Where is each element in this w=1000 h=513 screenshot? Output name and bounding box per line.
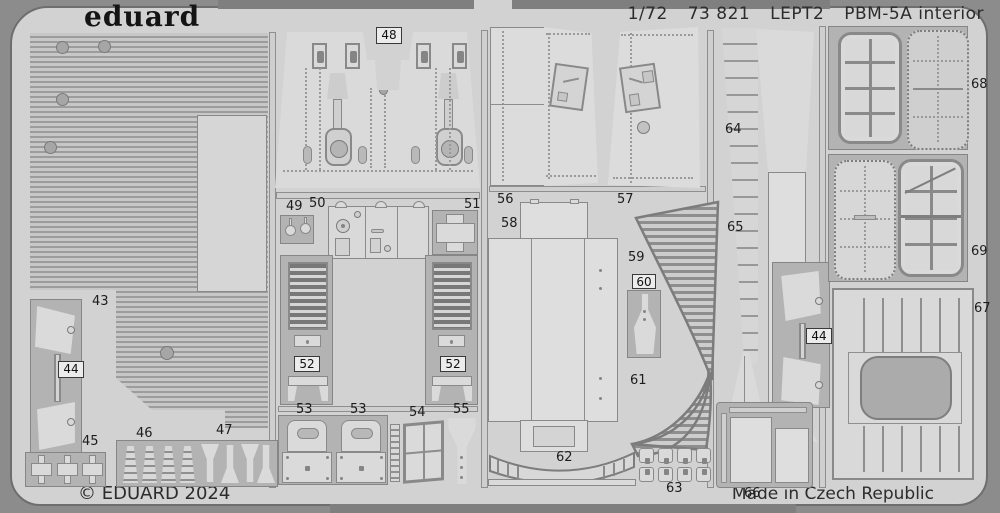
part-53-seat-base [336, 452, 386, 483]
part-51-carrier [432, 210, 478, 255]
part-45-cross [57, 463, 78, 476]
part-48-rivet-line [283, 170, 473, 172]
part-52-left-carrier [280, 255, 333, 405]
part-47-strap [241, 444, 259, 482]
part-67-cutout [860, 356, 952, 420]
part-50-knob [384, 245, 391, 252]
part-47-strap [221, 445, 239, 483]
part-label-54: 54 [409, 405, 426, 420]
part-67-ribbed-panel [832, 288, 974, 480]
part-48-rivet-line [370, 88, 372, 168]
header-info: 1/72 73 821 LEPT2 PBM-5A interior [614, 4, 984, 24]
part-52-bench-top [288, 376, 328, 386]
part-66-carrier [716, 402, 813, 488]
part-69-etched-panel [834, 160, 896, 280]
part-44-link [799, 323, 806, 359]
part-63-clamp [658, 467, 673, 482]
part-57-panel [605, 27, 700, 188]
part-52-bench-leg [319, 386, 328, 401]
part-48-rivet-line [449, 68, 451, 170]
part-56-wrapper [490, 27, 600, 186]
part-47-strap [201, 444, 219, 482]
part-63-clamp [677, 467, 692, 482]
part-48-mount-stem [333, 99, 342, 129]
part-63-clamp [658, 448, 673, 463]
part-46-ladder [180, 446, 195, 483]
part-50-bump [375, 201, 387, 208]
part-44-frame-b [35, 402, 77, 450]
part-52-plate [294, 335, 321, 347]
part-48-hole [379, 86, 388, 95]
catalog-number: 73 821 [688, 4, 750, 24]
part-47-strap [257, 445, 275, 483]
part-52-bench-leg [432, 386, 441, 401]
part-49-key-stem [289, 218, 292, 226]
part-label-64: 64 [725, 122, 742, 137]
frame-edge-bottom [330, 504, 796, 513]
part-54-wrapper [388, 418, 446, 485]
part-label-45: 45 [82, 434, 99, 449]
part-50-bump [335, 201, 347, 208]
part-50-knob [354, 211, 361, 218]
part-43-hole [160, 346, 174, 360]
part-label-69: 69 [971, 244, 988, 259]
part-44-pulley [67, 326, 75, 334]
part-63-clamp [696, 467, 711, 482]
kit-title: PBM-5A interior [844, 4, 984, 24]
part-66-plate-b [775, 428, 809, 483]
part-63-clamp [696, 448, 711, 463]
part-53-seat-back [341, 420, 381, 452]
part-label-62: 62 [556, 450, 573, 465]
part-label-63: 63 [666, 481, 683, 496]
part-62-base-strip [488, 479, 636, 486]
part-label-68: 68 [971, 77, 988, 92]
part-48-keyhole [325, 128, 352, 166]
part-50-gauge-dot [341, 224, 345, 228]
part-52-bench-top [432, 376, 472, 386]
part-67-bottom-ribs [846, 426, 962, 472]
part-57-grommet [637, 121, 650, 134]
part-label-55: 55 [453, 402, 470, 417]
part-52-louver [288, 262, 328, 330]
part-50-panel [328, 206, 429, 259]
part-label-53: 53 [350, 402, 367, 417]
part-label-53: 53 [296, 402, 313, 417]
scale-text: 1/72 [628, 4, 668, 24]
part-51-cross-horizontal [436, 223, 475, 243]
part-60-bottle [634, 294, 656, 354]
part-48-rivet-line [435, 68, 437, 170]
part-54-window [403, 420, 444, 484]
part-46-ladder [161, 446, 176, 483]
part-48-slot [452, 43, 467, 69]
part-50-bump [413, 201, 425, 208]
part-44-pulley [815, 381, 823, 389]
part-44-frame-a [779, 271, 823, 321]
part-53-seat-back [287, 420, 327, 452]
part-66-plate-a [730, 417, 772, 483]
part-50-slot [371, 229, 384, 233]
part-67-top-ribs [846, 298, 962, 352]
part-68-etched-panel [907, 30, 969, 150]
part-58-wrapper [488, 202, 618, 452]
part-63-clamp [677, 448, 692, 463]
part-68-window-frame [838, 32, 902, 144]
part-label-43: 43 [92, 294, 109, 309]
part-44-pulley [815, 297, 823, 305]
part-label-52-box: 52 [440, 356, 466, 372]
part-45-carrier [25, 452, 106, 487]
part-66-strip [721, 413, 727, 483]
part-label-52-box: 52 [294, 356, 320, 372]
part-58-bottom-tab [520, 420, 588, 452]
rail-horizontal-1 [276, 192, 480, 199]
part-56-detail-plate [549, 63, 589, 111]
part-label-66: 66 [744, 486, 761, 501]
part-58-top-tab [520, 202, 588, 240]
part-43-hole [56, 93, 69, 106]
part-52-bench-leg [288, 386, 297, 401]
part-49-carrier [280, 215, 314, 244]
part-label-61: 61 [630, 373, 647, 388]
part-label-51: 51 [464, 197, 481, 212]
part-43-plain-area [197, 115, 267, 292]
part-48-wrapper [275, 30, 480, 190]
part-49-key [300, 223, 311, 234]
part-label-60-box: 60 [632, 274, 656, 289]
part-53-carrier [278, 415, 388, 485]
part-56-left-section [490, 27, 545, 186]
part-53-seat-base [282, 452, 332, 483]
part-49-key-stem [304, 217, 307, 224]
part-66-strip [729, 407, 807, 413]
part-label-59: 59 [628, 250, 645, 265]
part-48-slot [416, 43, 431, 69]
part-52-louver [432, 262, 472, 330]
part-57-detail-plate [619, 63, 661, 114]
part-label-46: 46 [136, 426, 153, 441]
part-label-49: 49 [286, 199, 303, 214]
part-48-oval-slot [411, 146, 420, 164]
sheet-code: LEPT2 [770, 4, 824, 24]
part-label-44-box: 44 [58, 361, 84, 378]
rail-vertical-2 [481, 30, 488, 488]
part-label-47: 47 [216, 423, 233, 438]
part-48-oval-slot [464, 146, 473, 164]
part-50-box [370, 238, 381, 253]
part-43-hole [56, 41, 69, 54]
part-46-ladder [123, 446, 138, 483]
part-49-key [285, 225, 296, 236]
part-69-window-frame [898, 159, 964, 277]
part-48-bulkhead [275, 30, 480, 190]
part-60-carrier [627, 290, 661, 358]
part-46-ladder [142, 446, 157, 483]
part-48-rivet-line [384, 88, 386, 168]
part-68-carrier [828, 26, 968, 150]
rail-vertical-4 [819, 26, 826, 488]
part-label-65: 65 [727, 220, 744, 235]
part-45-cross [82, 463, 103, 476]
part-50-divider [397, 207, 398, 258]
part-43-hole [44, 141, 57, 154]
part-54-ladder-strip [390, 424, 400, 482]
part-52-plate [438, 335, 465, 347]
part-44-pulley [67, 418, 75, 426]
part-label-48-box: 48 [376, 27, 402, 44]
part-48-mount-head [327, 73, 348, 99]
part-45-cross [31, 463, 52, 476]
part-48-slot [345, 43, 360, 69]
part-48-oval-slot [358, 146, 367, 164]
part-46-47-carrier [116, 440, 278, 487]
part-58-body [488, 238, 618, 422]
part-50-divider [365, 207, 366, 258]
part-label-58: 58 [501, 216, 518, 231]
part-63-clamp [639, 448, 654, 463]
part-48-slot [312, 43, 327, 69]
part-48-rivet-line [319, 68, 321, 170]
frame-notch [474, 0, 512, 11]
part-63-clamp [639, 467, 654, 482]
part-label-50: 50 [309, 196, 326, 211]
eduard-logo: eduard [84, 0, 200, 33]
frame-edge-top-left [218, 0, 474, 9]
part-48-oval-slot [303, 146, 312, 164]
part-label-44-box: 44 [806, 328, 832, 344]
part-52-right-carrier [425, 255, 478, 405]
part-43-hole [98, 40, 111, 53]
part-52-bench-leg [463, 386, 472, 401]
part-69-carrier [828, 154, 968, 282]
part-50-box [335, 238, 350, 256]
part-label-67: 67 [974, 301, 991, 316]
pe-fret-scan: eduard 1/72 73 821 LEPT2 PBM-5A interior… [0, 0, 1000, 513]
